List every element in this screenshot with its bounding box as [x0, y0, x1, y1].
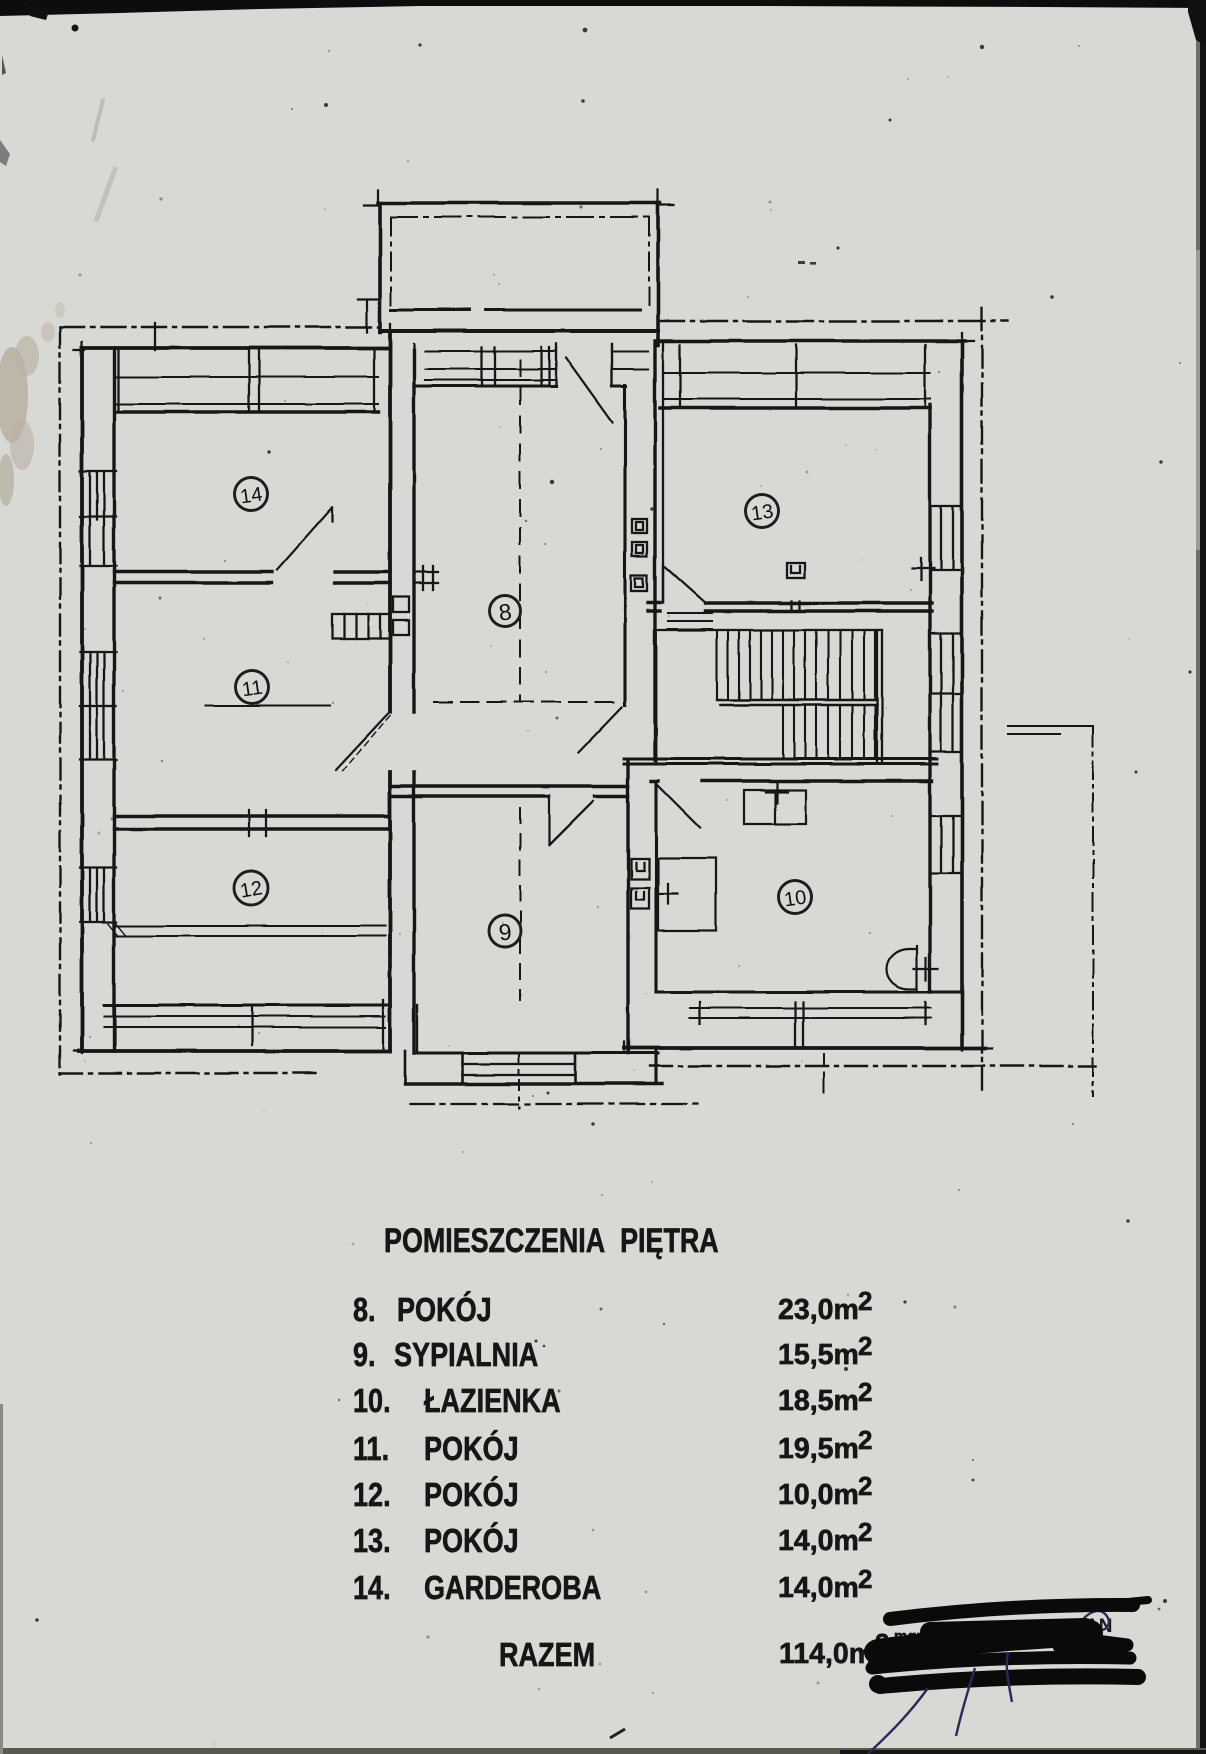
svg-text:2: 2 — [858, 1517, 872, 1547]
svg-text:14,0m: 14,0m — [778, 1525, 859, 1557]
svg-text:11: 11 — [240, 677, 264, 702]
svg-text:POKÓJ: POKÓJ — [424, 1522, 519, 1559]
svg-text:23,0m: 23,0m — [778, 1294, 859, 1326]
svg-text:POMIESZCZENIA PIĘTRA: POMIESZCZENIA PIĘTRA — [384, 1221, 719, 1260]
svg-text:POKÓJ: POKÓJ — [397, 1291, 492, 1328]
svg-text:8.: 8. — [353, 1293, 376, 1329]
svg-text:POKÓJ: POKÓJ — [424, 1476, 519, 1513]
svg-text:ŁAZIENKA: ŁAZIENKA — [424, 1384, 561, 1420]
svg-text:2: 2 — [858, 1471, 872, 1501]
svg-text:10.: 10. — [353, 1384, 391, 1420]
svg-text:10,0m: 10,0m — [778, 1479, 859, 1511]
svg-text:12.: 12. — [353, 1478, 391, 1514]
svg-text:10: 10 — [783, 887, 808, 912]
svg-text:2: 2 — [858, 1425, 872, 1455]
svg-text:12: 12 — [238, 877, 264, 903]
svg-text:15,5m: 15,5m — [778, 1339, 859, 1371]
svg-text:114,0m: 114,0m — [779, 1638, 874, 1670]
svg-text:14.: 14. — [353, 1571, 391, 1607]
svg-text:2: 2 — [858, 1331, 872, 1361]
svg-text:11.: 11. — [353, 1432, 389, 1468]
svg-text:8: 8 — [497, 598, 512, 625]
svg-text:18,5m: 18,5m — [778, 1385, 859, 1417]
svg-text:SYPIALNIA: SYPIALNIA — [394, 1338, 538, 1374]
svg-text:9: 9 — [497, 918, 512, 945]
svg-text:13: 13 — [750, 501, 775, 526]
svg-text:9.: 9. — [353, 1338, 376, 1374]
svg-text:2: 2 — [858, 1286, 872, 1316]
svg-text:2: 2 — [858, 1564, 872, 1594]
svg-text:GARDEROBA: GARDEROBA — [424, 1571, 601, 1607]
svg-text:13.: 13. — [353, 1524, 391, 1560]
svg-text:RAZEM: RAZEM — [499, 1638, 595, 1674]
svg-text:19,5m: 19,5m — [778, 1433, 859, 1465]
svg-text:14: 14 — [239, 484, 264, 509]
svg-text:14,0m: 14,0m — [778, 1572, 859, 1604]
svg-text:POKÓJ: POKÓJ — [424, 1430, 519, 1467]
svg-text:2: 2 — [858, 1377, 872, 1407]
